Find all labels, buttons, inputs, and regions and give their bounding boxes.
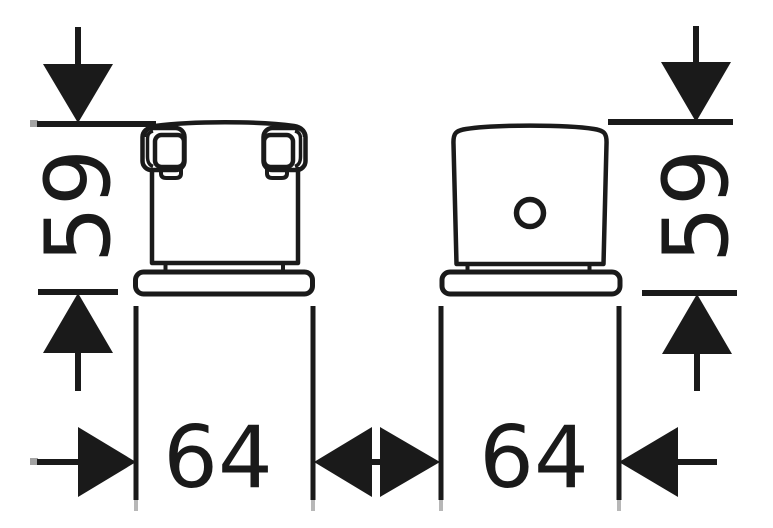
front-body bbox=[152, 167, 298, 263]
side-width-dimension: 64 bbox=[380, 408, 717, 508]
tick-artifact bbox=[30, 120, 38, 127]
front-view bbox=[136, 122, 313, 294]
dimension-drawing: 59 59 64 64 bbox=[0, 0, 773, 528]
side-height-dimension: 59 bbox=[608, 26, 749, 391]
front-base-plate bbox=[136, 272, 313, 294]
dimension-drawing-canvas: 59 59 64 64 bbox=[0, 0, 773, 528]
arrow-down-icon bbox=[43, 64, 113, 123]
arrow-up-icon bbox=[662, 294, 732, 354]
front-width-label: 64 bbox=[163, 408, 272, 508]
side-width-label: 64 bbox=[479, 408, 588, 508]
arrow-left-icon bbox=[619, 427, 678, 497]
front-right-ear-inner bbox=[264, 135, 293, 167]
front-height-label: 59 bbox=[26, 149, 131, 264]
front-left-ear-inner bbox=[155, 135, 184, 167]
tick-artifact bbox=[30, 458, 38, 465]
side-body bbox=[453, 126, 606, 264]
side-base-plate bbox=[442, 272, 620, 294]
front-left-ear-fold bbox=[148, 131, 154, 167]
side-view bbox=[442, 126, 620, 294]
screw-hole bbox=[517, 200, 544, 227]
arrow-right-icon bbox=[78, 427, 136, 497]
arrow-down-icon bbox=[661, 62, 731, 122]
arrow-right-icon bbox=[380, 427, 440, 497]
arrow-left-icon bbox=[314, 427, 372, 497]
front-width-dimension: 64 bbox=[30, 408, 372, 508]
arrow-up-icon bbox=[43, 293, 113, 353]
side-height-label: 59 bbox=[644, 149, 749, 264]
front-right-ear-fold bbox=[295, 131, 301, 167]
